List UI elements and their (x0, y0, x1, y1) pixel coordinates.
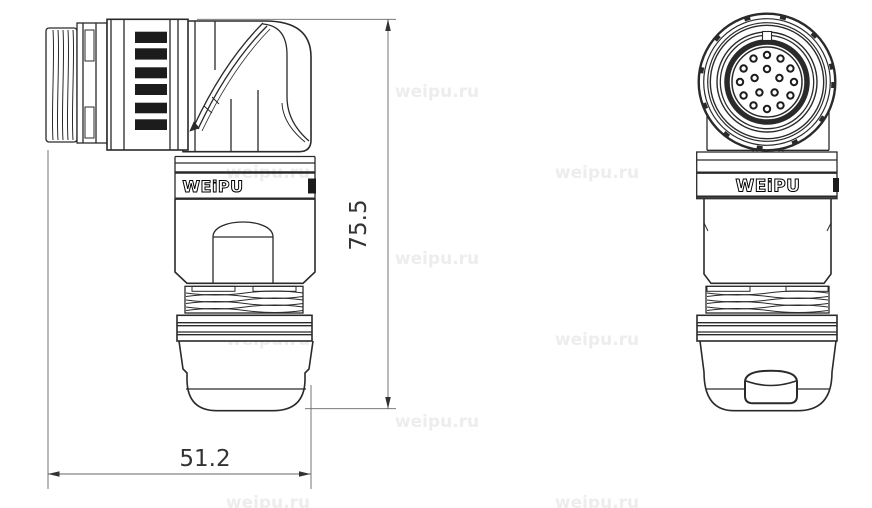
length-dimension-value: 51.2 (179, 446, 230, 472)
pin-hole (737, 79, 743, 85)
arrowhead-right (299, 471, 311, 477)
watermark-text: weipu.ru (395, 249, 479, 269)
pin-hole (764, 106, 770, 112)
front-logo-band: WEiPU (697, 152, 839, 199)
pin-hole (750, 55, 756, 61)
side-gland-nut (177, 315, 313, 410)
technical-drawing: weipu.ruweipu.ruweipu.ruweipu.ruweipu.ru… (0, 0, 872, 508)
front-logo-text: WEiPU (736, 177, 801, 197)
coupling-nut (107, 19, 188, 150)
side-latch-slot (308, 179, 316, 194)
pin-hole (751, 75, 757, 81)
pin-hole (791, 79, 797, 85)
side-body (175, 199, 315, 283)
arrowhead-left (48, 471, 60, 477)
watermark-text: weipu.ru (555, 163, 639, 183)
side-logo-text: WEiPU (182, 177, 243, 196)
pin-hole (777, 55, 783, 61)
arrowhead-up (385, 19, 391, 31)
pin-hole (756, 89, 762, 95)
side-view: WEiPU (46, 19, 316, 410)
elbow-housing (183, 21, 311, 152)
cable-entry-dimple (745, 371, 797, 404)
watermark-text: weipu.ru (555, 493, 639, 508)
watermark-text: weipu.ru (395, 412, 479, 432)
pin-hole (740, 65, 746, 71)
front-gland-nut (697, 315, 837, 410)
height-dimension-value: 75.5 (346, 199, 372, 250)
front-latch-slot (833, 178, 839, 192)
front-view: WEiPU (697, 14, 839, 411)
clamp-button (213, 222, 273, 283)
watermark-text: weipu.ru (395, 82, 479, 102)
side-gland-thread (185, 286, 303, 313)
connector-face (699, 14, 836, 151)
pin-hole (740, 92, 746, 98)
pin-hole (764, 52, 770, 58)
pin-hole (771, 89, 777, 95)
front-gland-thread (706, 286, 829, 313)
watermark-text: weipu.ru (555, 330, 639, 350)
keyway-notch (763, 32, 772, 41)
watermark-text: weipu.ru (226, 493, 310, 508)
pin-hole (777, 102, 783, 108)
pin-hole (787, 65, 793, 71)
pin-hole (787, 92, 793, 98)
pin-hole (764, 66, 770, 72)
seal-ring-section (77, 23, 107, 143)
front-thread-section (46, 28, 77, 142)
drawing-canvas: weipu.ruweipu.ruweipu.ruweipu.ruweipu.ru… (0, 0, 872, 508)
front-body (704, 199, 831, 284)
pin-hole (750, 102, 756, 108)
arrowhead-down (385, 397, 391, 409)
pin-hole (776, 75, 782, 81)
